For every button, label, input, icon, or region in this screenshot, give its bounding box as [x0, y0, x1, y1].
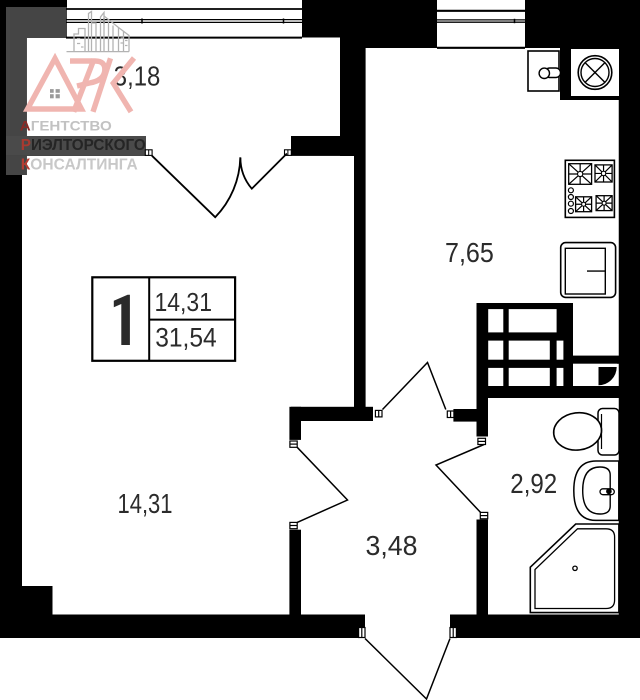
svg-text:3,48: 3,48 — [366, 530, 418, 561]
svg-text:РИЭЛТОРСКОГО: РИЭЛТОРСКОГО — [21, 137, 146, 154]
svg-text:АГЕНТСТВО: АГЕНТСТВО — [20, 119, 112, 134]
svg-text:7,65: 7,65 — [445, 237, 494, 268]
svg-text:КОНСАЛТИНГА: КОНСАЛТИНГА — [21, 157, 138, 174]
svg-text:2,92: 2,92 — [510, 468, 557, 499]
svg-text:14,31: 14,31 — [118, 488, 173, 519]
svg-text:31,54: 31,54 — [155, 323, 217, 353]
svg-text:14,31: 14,31 — [155, 287, 213, 317]
